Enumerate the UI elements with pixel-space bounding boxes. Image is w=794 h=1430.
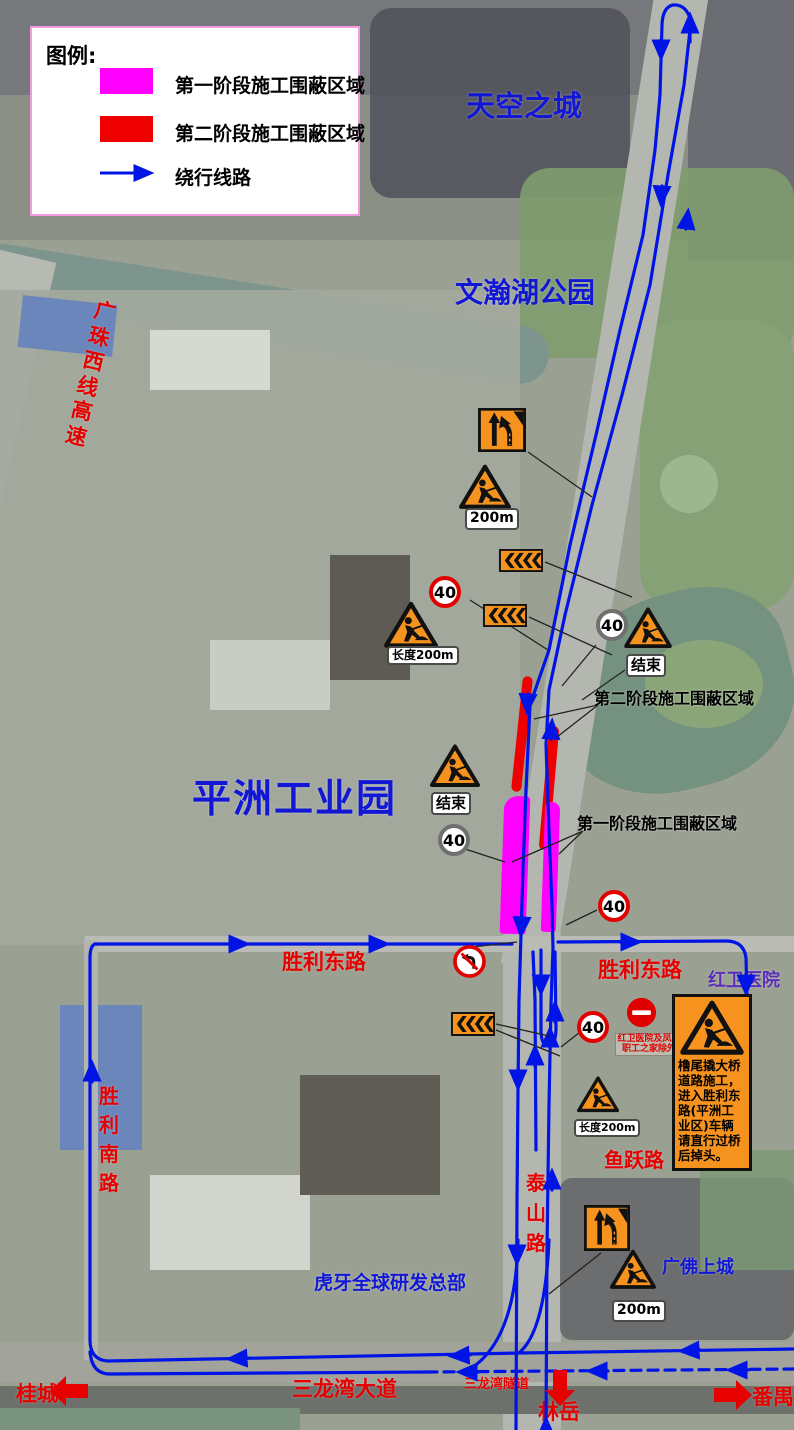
leader-lines [459,452,632,1294]
route-line [662,5,691,24]
leader-line [561,1032,580,1047]
speed-limit-value: 40 [434,583,456,602]
notice-text: 橹尾撬大桥道路施工，进入胜利东路(平洲工业区)车辆请直行过桥后掉头。 [678,1058,746,1163]
callout-phase1-zone: 第一阶段施工围蔽区域 [577,810,737,834]
distance-200m-chip: 200m [465,508,519,530]
chevron-sign [483,604,527,627]
no-entry-sign [626,997,657,1028]
length-200m-chip: 长度200m [387,646,459,665]
leader-line [562,645,596,686]
speed-limit-value: 40 [582,1018,604,1037]
arrow-east-panyu [714,1380,752,1410]
route-line [520,1240,549,1352]
callout-phase2-zone: 第二阶段施工围蔽区域 [594,685,754,709]
arrow-south-linyue [545,1370,575,1406]
legend-swatch-phase1 [100,68,153,94]
leader-line [559,831,583,854]
speed-limit-40-sign: 40 [577,1011,609,1043]
distance-200m-chip: 200m [612,1300,666,1322]
construction-notice-board: 橹尾撬大桥道路施工，进入胜利东路(平洲工业区)车辆请直行过桥后掉头。 [672,994,752,1171]
leader-line [528,452,592,497]
legend-label-phase2: 第二阶段施工围蔽区域 [175,119,365,146]
roadwork-sign [610,1249,656,1290]
speed-limit-value: 40 [601,616,623,635]
arrow-west-guicheng [50,1376,88,1406]
speed-limit-value: 40 [603,897,625,916]
legend-swatch-phase2 [100,116,153,142]
legend-label-phase1: 第一阶段施工围蔽区域 [175,71,365,98]
speed-limit-end-sign: 40 [438,824,470,856]
lane-merge-sign [478,408,526,452]
lane-merge-sign [584,1205,630,1251]
roadwork-sign [384,601,438,649]
roadwork-sign [459,464,511,510]
end-chip: 结束 [626,654,666,677]
legend-detour-arrow [96,164,162,182]
no-left-turn-sign [453,945,486,978]
leader-line [566,910,597,925]
route-line [470,1240,518,1369]
end-chip: 结束 [431,792,471,815]
roadwork-sign [577,1076,619,1113]
construction-detour-map: 图例: 第一阶段施工围蔽区域 第二阶段施工围蔽区域 绕行线路 天空之城 文瀚湖公… [0,0,794,1430]
chevron-sign [499,549,543,572]
speed-limit-value: 40 [443,831,465,850]
route-line [90,944,95,1340]
roadwork-icon [680,1000,744,1056]
roadwork-sign [430,744,480,788]
route-lines [90,5,794,1430]
legend-title: 图例: [46,40,96,70]
chevron-sign [451,1012,495,1036]
legend-label-detour: 绕行线路 [175,163,251,190]
speed-limit-40-sign: 40 [598,890,630,922]
leader-line [545,562,632,597]
roadwork-sign [624,607,672,649]
leader-line [549,1253,601,1294]
length-200m-chip: 长度200m [574,1119,640,1137]
legend: 图例: 第一阶段施工围蔽区域 第二阶段施工围蔽区域 绕行线路 [30,26,360,216]
direction-arrows [50,1370,752,1410]
